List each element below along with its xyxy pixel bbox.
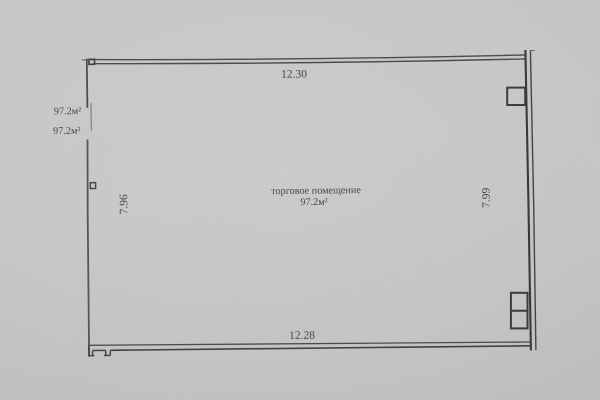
- svg-text:7.99: 7.99: [481, 187, 493, 208]
- svg-text:97.2м²: 97.2м²: [53, 126, 80, 137]
- svg-text:7.96: 7.96: [118, 194, 130, 215]
- svg-text:12.30: 12.30: [281, 68, 307, 80]
- svg-text:97.2м²: 97.2м²: [300, 197, 327, 208]
- svg-text:97.2м²: 97.2м²: [54, 106, 81, 117]
- svg-text:12.28: 12.28: [289, 330, 315, 342]
- svg-text:торговое помещение: торговое помещение: [271, 185, 361, 197]
